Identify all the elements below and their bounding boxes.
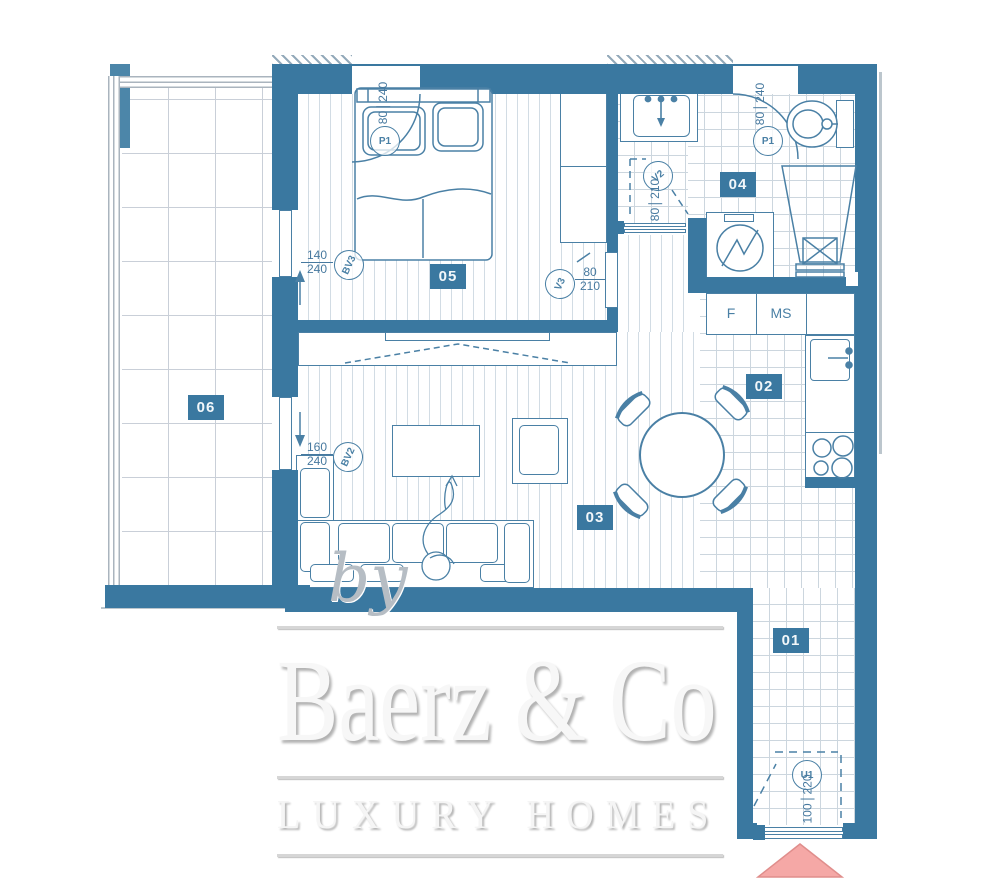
dimension-v3: 80 210 (575, 266, 605, 293)
dim-height: 240 (301, 455, 333, 468)
dimension-p1-bathroom: 80 240 (753, 83, 767, 125)
dim-width: 100 (801, 804, 815, 824)
dim-width: 140 (301, 249, 333, 263)
dim-width: 160 (301, 441, 333, 455)
sofa-back-cushion (360, 564, 404, 582)
room-label-corridor: 01 (773, 628, 809, 653)
wall-living-left (272, 332, 298, 397)
slider-block (614, 221, 624, 234)
sofa-back-cushion (310, 564, 354, 582)
wall-terrace-bottom (105, 585, 310, 608)
washing-machine-tray (724, 214, 754, 222)
living-closet-top-shelf (385, 332, 550, 341)
washing-machine (706, 212, 774, 282)
tag-text: BV3 (340, 254, 358, 276)
dimension-u1: 100 220 (801, 774, 815, 823)
floor-plan: F MS (0, 0, 1000, 895)
dim-height: 240 (301, 263, 333, 276)
wall-corridor-left (737, 588, 753, 837)
bedroom-wardrobe (560, 93, 607, 243)
coffee-table (392, 425, 480, 477)
bathroom-sliding-door (624, 229, 686, 233)
dim-width: 80 (575, 266, 605, 280)
wall-right (855, 64, 877, 837)
dim-height: 240 (376, 82, 390, 107)
dimension-v2: 80 210 (648, 179, 662, 221)
entry-door-panel (759, 834, 843, 839)
wall-top (420, 64, 733, 94)
watermark-rule (277, 854, 723, 857)
tag-text: P1 (379, 136, 391, 147)
door-tag-p1-bedroom: P1 (370, 126, 400, 156)
wall-bedroom-living-divider (272, 320, 618, 332)
watermark-rule (277, 776, 723, 779)
watermark-brand: Baerz & Co (277, 642, 717, 760)
sofa-seat (338, 523, 390, 563)
watermark-rule (277, 626, 723, 629)
tag-text: P1 (762, 136, 774, 147)
tag-text: V3 (552, 276, 567, 292)
dim-height: 210 (575, 280, 605, 293)
sofa-armrest (504, 523, 530, 583)
wall-bedroom-bathroom (607, 64, 618, 218)
wall-living-left (272, 470, 298, 588)
dim-height: 210 (648, 179, 662, 204)
tag-text: BV2 (339, 446, 357, 468)
room-label-kitchen: 02 (746, 374, 782, 399)
hallway-floor (618, 235, 688, 332)
bedroom-door-v3 (605, 252, 618, 308)
wall-outer-line (879, 72, 882, 454)
room-label-bedroom: 05 (430, 264, 466, 289)
dimension-p1-bedroom: 80 240 (376, 82, 390, 124)
terrace-glass-wall-left (108, 76, 120, 585)
wall-living-bottom (285, 588, 753, 612)
entry-door-block (753, 825, 765, 840)
ms-label: MS (756, 305, 806, 321)
bathroom-sliding-door (624, 223, 686, 227)
cabinet-divider (806, 293, 807, 335)
bathroom-sink (633, 95, 690, 137)
sofa-seat (392, 523, 444, 563)
counter-end-wall (805, 477, 857, 488)
door-tag-p1-bathroom: P1 (753, 126, 783, 156)
sofa-seat (446, 523, 498, 563)
armchair-cushion (519, 425, 559, 475)
dim-width: 80 (376, 111, 390, 124)
entry-door-panel (759, 827, 843, 832)
balcony-door-bv2 (279, 397, 292, 470)
dim-width: 80 (648, 208, 662, 221)
dim-height: 240 (753, 83, 767, 108)
wall-bathroom-kitchen (688, 277, 855, 293)
toilet-cistern (836, 100, 854, 148)
bedroom-wardrobe-divider (560, 166, 607, 167)
dim-height: 220 (801, 774, 815, 799)
kitchen-sink (810, 339, 850, 381)
dimension-bv3: 140 240 (301, 249, 333, 276)
wall-hallway-right (688, 218, 706, 282)
terrace-glass-wall-top (120, 76, 272, 88)
terrace-floor (122, 88, 272, 585)
wall-hallway (607, 308, 618, 320)
dim-width: 80 (753, 112, 767, 125)
wall-niche (846, 272, 858, 286)
wall-entry-stub (843, 823, 877, 839)
balcony-door-bv3 (279, 210, 292, 277)
sofa-cushion (300, 468, 330, 518)
entrance-arrow (758, 844, 842, 877)
wall-bedroom-left (272, 64, 298, 210)
room-label-terrace: 06 (188, 395, 224, 420)
stove (805, 432, 855, 478)
fridge-label: F (706, 305, 756, 321)
room-label-living: 03 (577, 505, 613, 530)
room-label-bathroom: 04 (720, 172, 756, 197)
watermark-tagline: LUXURY HOMES (277, 790, 720, 838)
dimension-bv2: 160 240 (301, 441, 333, 468)
